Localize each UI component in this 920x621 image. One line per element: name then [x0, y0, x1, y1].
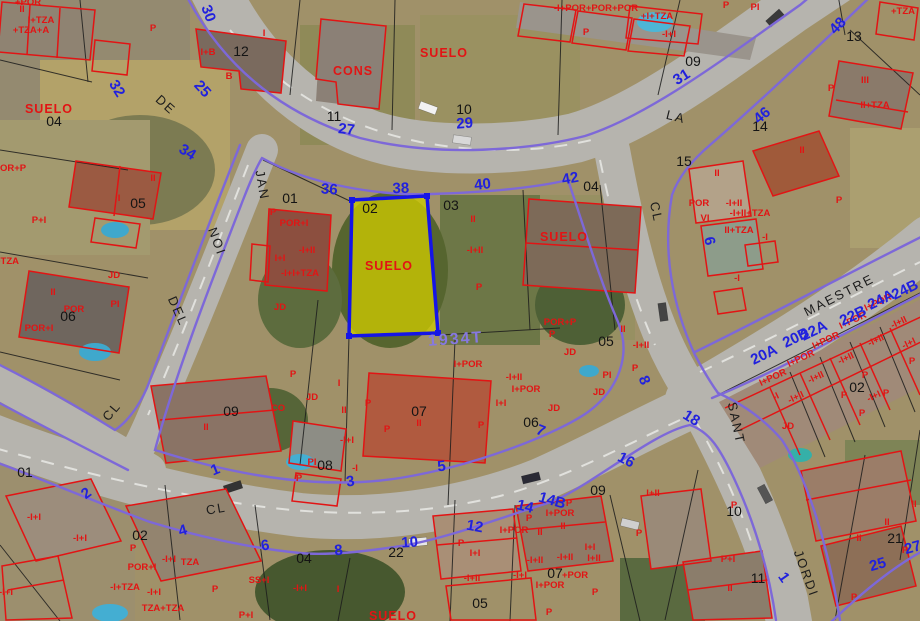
construction-code-label: P — [841, 390, 848, 401]
construction-code-label: JD — [548, 403, 560, 414]
construction-code-label: SUELO — [365, 259, 413, 273]
construction-code-label: P+I — [239, 610, 254, 621]
parcel-number-label: 03 — [443, 197, 459, 213]
construction-code-label: -I+II — [506, 372, 523, 383]
construction-code-label: II — [884, 517, 889, 528]
parcel-number-label: 04 — [46, 113, 62, 129]
construction-code-label: PI — [308, 457, 317, 468]
construction-code-label: P — [212, 584, 219, 595]
construction-code-label: JD — [108, 270, 120, 281]
pool — [79, 343, 111, 361]
parcel-number-label: 02 — [362, 200, 378, 216]
construction-code-label: I — [263, 28, 266, 39]
construction-code-label: -I+II — [527, 555, 544, 566]
construction-code-label: +POR — [15, 0, 41, 8]
construction-code-label: -I+POR+POR+POR — [554, 3, 638, 14]
construction-code-label: -I — [734, 273, 740, 284]
construction-code-label: II — [341, 405, 346, 416]
construction-code-label: II — [50, 287, 55, 298]
parcel-number-label: 13 — [846, 28, 862, 44]
construction-code-label: II — [620, 324, 625, 335]
construction-code-label: II — [714, 168, 719, 179]
construction-code-label: -I+II — [557, 552, 574, 563]
construction-code-label: P — [583, 27, 590, 38]
construction-code-label: II — [856, 533, 861, 544]
construction-code-label: P — [632, 363, 639, 374]
parcel-number-label: 05 — [472, 595, 488, 611]
construction-code-label: POR+P — [544, 317, 577, 328]
construction-code-label: -I+I — [662, 29, 676, 40]
construction-code-label: II — [727, 583, 732, 594]
pool — [579, 365, 599, 377]
construction-code-label: -I+I+TZA — [281, 268, 319, 279]
construction-code-label: +TZA — [891, 6, 915, 17]
parcel-number-label: 09 — [685, 53, 701, 69]
construction-code-label: PI — [603, 370, 612, 381]
construction-code-label: PI — [751, 2, 760, 13]
construction-code-label: POR+I — [128, 562, 157, 573]
construction-code-label: POR+I — [280, 218, 309, 229]
construction-code-label: -I+I — [162, 554, 176, 565]
parcel-number-label: 09 — [590, 482, 606, 498]
street-number-label: 36 — [320, 180, 338, 198]
construction-code-label: II — [150, 173, 155, 184]
construction-code-label: I+I — [275, 253, 286, 264]
construction-code-label: -I+I — [147, 587, 161, 598]
street-number-label: 5 — [436, 458, 446, 476]
street-number-label: 38 — [392, 180, 409, 198]
construction-code-label: P — [130, 543, 137, 554]
parcel-number-label: 01 — [282, 190, 298, 206]
construction-code-label: -I+II — [464, 573, 481, 584]
construction-code-label: POR — [689, 198, 710, 209]
construction-code-label: -I+I — [27, 512, 41, 523]
construction-code-label: -I+I — [340, 435, 354, 446]
construction-code-label: P — [723, 0, 730, 11]
construction-code-label: P+I — [721, 554, 736, 565]
construction-code-label: II — [416, 418, 421, 429]
construction-code-label: II — [203, 422, 208, 433]
construction-code-label: P — [909, 356, 916, 367]
construction-code-label: P — [549, 329, 556, 340]
parcel-number-label: 04 — [296, 550, 312, 566]
parcel-number-label: 05 — [598, 333, 614, 349]
parcel-number-label: 11 — [751, 570, 766, 586]
construction-code-label: P — [150, 23, 157, 34]
cadastral-map[interactable]: III+TZA+TZA+A+PORPII+BBCONSSUELOSUELO-I+… — [0, 0, 920, 621]
construction-code-label: +TZA — [0, 256, 19, 267]
construction-code-label: -I+I — [73, 533, 87, 544]
construction-code-label: I+B — [200, 47, 215, 58]
construction-code-label: I — [337, 584, 340, 595]
parcel-number-label: 08 — [317, 457, 333, 473]
parcel-number-label: 10 — [726, 503, 742, 519]
construction-code-label: P — [636, 528, 643, 539]
parcel-number-label: 12 — [233, 43, 249, 59]
construction-code-label: II+TZA — [724, 225, 753, 236]
street-number-label: 40 — [473, 175, 491, 194]
construction-code-label: -I+I — [293, 583, 307, 594]
construction-code-label: II+TZA — [860, 100, 889, 111]
construction-code-label: I+POR — [454, 359, 483, 370]
construction-code-label: P — [476, 282, 483, 293]
street-number-label: 12 — [465, 517, 484, 537]
construction-code-label: SUELO — [540, 230, 588, 244]
construction-code-label: POR+I — [25, 323, 54, 334]
construction-code-label: JD — [306, 392, 318, 403]
construction-code-label: P — [592, 587, 599, 598]
construction-code-label: -I+II — [633, 340, 650, 351]
construction-code-label: P — [458, 538, 465, 549]
street-number-label: 27 — [337, 120, 355, 139]
parcel-number-label: 15 — [676, 153, 692, 169]
construction-code-label: P — [883, 388, 890, 399]
construction-code-label: P — [546, 607, 553, 618]
construction-code-label: -I+II — [467, 245, 484, 256]
construction-code-label: I+POR — [500, 525, 529, 536]
construction-code-label: -I+TZA — [110, 582, 140, 593]
construction-code-label: P — [566, 498, 573, 509]
construction-code-label: I — [338, 378, 341, 389]
construction-code-label: B — [226, 71, 233, 82]
construction-code-label: JD — [593, 387, 605, 398]
construction-code-label: CO — [271, 403, 285, 414]
construction-code-label: P — [296, 473, 303, 484]
construction-code-label: P — [836, 195, 843, 206]
construction-code-label: SUELO — [420, 46, 468, 60]
construction-code-label: II — [799, 145, 804, 156]
construction-code-label: +TZA+A — [13, 25, 50, 36]
construction-code-label: PI — [111, 299, 120, 310]
parcel-number-label: 09 — [223, 403, 239, 419]
construction-code-label: OR+P — [0, 163, 27, 174]
construction-code-label: I+I — [585, 542, 596, 553]
construction-code-label: P — [478, 420, 485, 431]
construction-code-label: -I+II+TZA — [730, 208, 771, 219]
street-number-label: 8 — [333, 542, 343, 560]
construction-code-label: -I+II — [299, 245, 316, 256]
construction-code-label: VI — [701, 213, 710, 224]
parcel-number-label: 02 — [132, 527, 148, 543]
construction-code-label: I+I — [496, 398, 507, 409]
construction-code-label: P+I — [32, 215, 47, 226]
construction-code-label: I+II — [646, 488, 659, 499]
construction-code-label: -I — [762, 232, 768, 243]
street-number-label: 42 — [561, 169, 580, 189]
construction-code-label: I+II — [587, 553, 600, 564]
construction-code-label: P — [851, 592, 858, 603]
construction-code-label: SUELO — [369, 609, 417, 621]
construction-code-label: -I+I — [513, 570, 527, 581]
construction-code-label: P — [859, 408, 866, 419]
construction-code-label: TZA — [181, 557, 200, 568]
construction-code-label: P — [384, 424, 391, 435]
street-number-label: 29 — [456, 114, 474, 132]
construction-code-label: I+I — [470, 548, 481, 559]
construction-code-label: P — [290, 369, 297, 380]
construction-code-label: +I+TZA — [641, 11, 673, 22]
construction-code-label: P — [270, 207, 277, 218]
parcel-number-label: 04 — [583, 178, 599, 194]
construction-code-label: -I+I — [0, 587, 13, 598]
construction-code-label: SS+I — [249, 575, 270, 586]
construction-code-label: III — [861, 75, 869, 86]
construction-code-label: JD — [564, 347, 576, 358]
construction-code-label: JD — [274, 302, 286, 313]
construction-code-label: I — [118, 193, 121, 204]
construction-code-label: II — [537, 527, 542, 538]
construction-code-label: CONS — [333, 64, 373, 78]
construction-code-label: II — [911, 499, 916, 510]
parcel-number-label: 21 — [887, 530, 903, 546]
construction-code-label: II — [560, 521, 565, 532]
parcel-number-label: 01 — [17, 464, 33, 480]
construction-code-label: TZA+TZA — [142, 603, 185, 614]
construction-code-label: JD — [782, 421, 794, 432]
construction-code-label: I+POR — [536, 580, 565, 591]
pool — [101, 222, 129, 238]
parcel-number-label: 05 — [130, 195, 146, 211]
construction-code-label: P — [365, 398, 372, 409]
parcel-number-label: 02 — [849, 379, 865, 395]
parcel-number-label: 07 — [411, 403, 427, 419]
construction-code-label: I+POR — [512, 384, 541, 395]
cadastral-map-viewport[interactable]: III+TZA+TZA+A+PORPII+BBCONSSUELOSUELO-I+… — [0, 0, 920, 621]
parcel-number-label: 06 — [60, 308, 76, 324]
street-number-label: 10 — [401, 533, 419, 551]
construction-code-label: +POR — [562, 570, 588, 581]
parcel-number-label: 07 — [547, 565, 563, 581]
construction-code-label: II — [470, 214, 475, 225]
construction-code-label: P — [828, 83, 835, 94]
